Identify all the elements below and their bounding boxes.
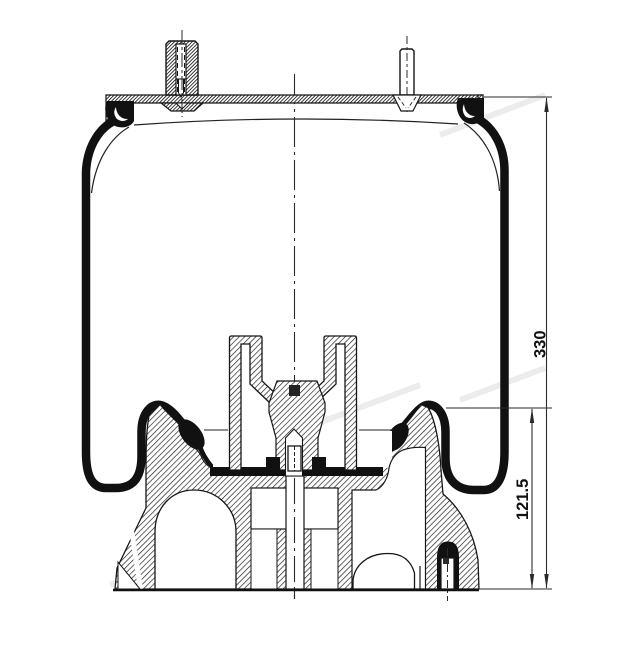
svg-text:121.5: 121.5 (514, 479, 532, 520)
svg-text:330: 330 (532, 330, 550, 358)
